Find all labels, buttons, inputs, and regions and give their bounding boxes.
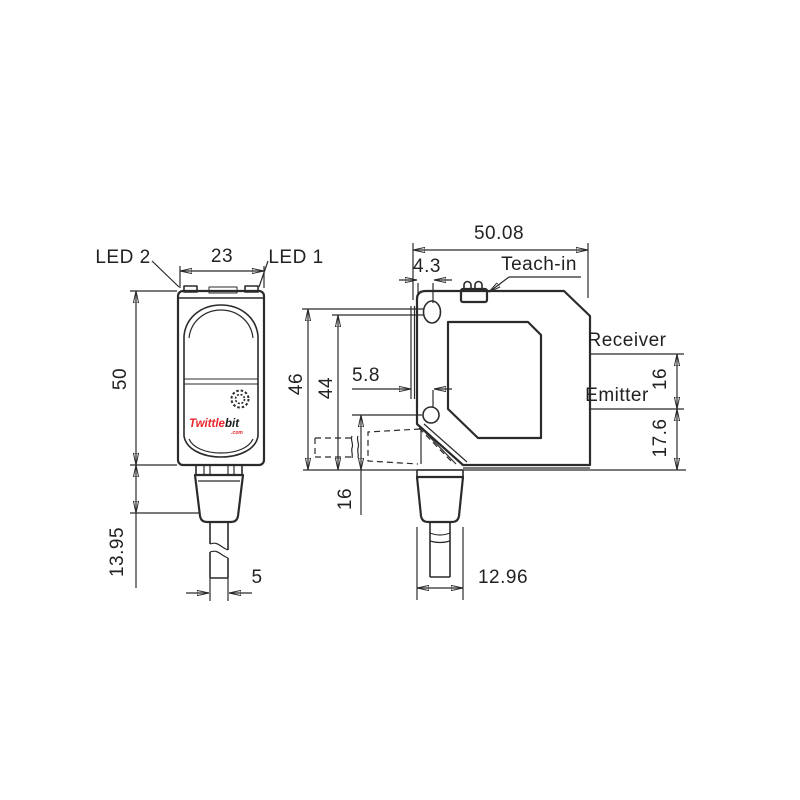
- teach-in-label: Teach-in: [501, 254, 577, 276]
- brand-logo: Twittlebit: [189, 418, 239, 430]
- receiver-label: Receiver: [588, 330, 667, 352]
- brand-logo-suffix: bit: [225, 418, 239, 430]
- dim-hole-top-offset-label: 4.3: [413, 256, 441, 278]
- dim-width-label: 23: [211, 246, 233, 268]
- emitter-label: Emitter: [585, 385, 649, 407]
- brand-logo-domain: .com: [231, 430, 243, 436]
- side-view-dimensions: [302, 243, 684, 600]
- sensor-dimension-drawing: LED 2 LED 1 23 50 13.95 5 Twittlebit .co…: [0, 0, 800, 800]
- dim-receiver-emitter-label: 16: [650, 368, 672, 390]
- dim-depth-label: 50.08: [474, 223, 524, 245]
- brand-logo-prefix: Twittle: [189, 418, 225, 430]
- dim-hole-to-bottom-label: 16: [335, 488, 357, 510]
- dim-hole-side-offset-label: 5.8: [352, 365, 380, 387]
- dim-44-label: 44: [316, 377, 338, 399]
- dim-connector-height-label: 13.95: [107, 527, 129, 577]
- drawing-linework: [0, 0, 800, 800]
- dim-connector-width-label: 12.96: [478, 567, 528, 589]
- led1-label: LED 1: [268, 247, 323, 269]
- dim-height-label: 50: [110, 368, 132, 390]
- dim-emitter-bottom-label: 17.6: [650, 419, 672, 458]
- led2-label: LED 2: [95, 247, 150, 269]
- dim-cable-diameter-label: 5: [251, 567, 262, 589]
- logo-spiral-icon: [232, 391, 249, 408]
- front-view-body: [178, 286, 264, 578]
- dim-46-label: 46: [286, 373, 308, 395]
